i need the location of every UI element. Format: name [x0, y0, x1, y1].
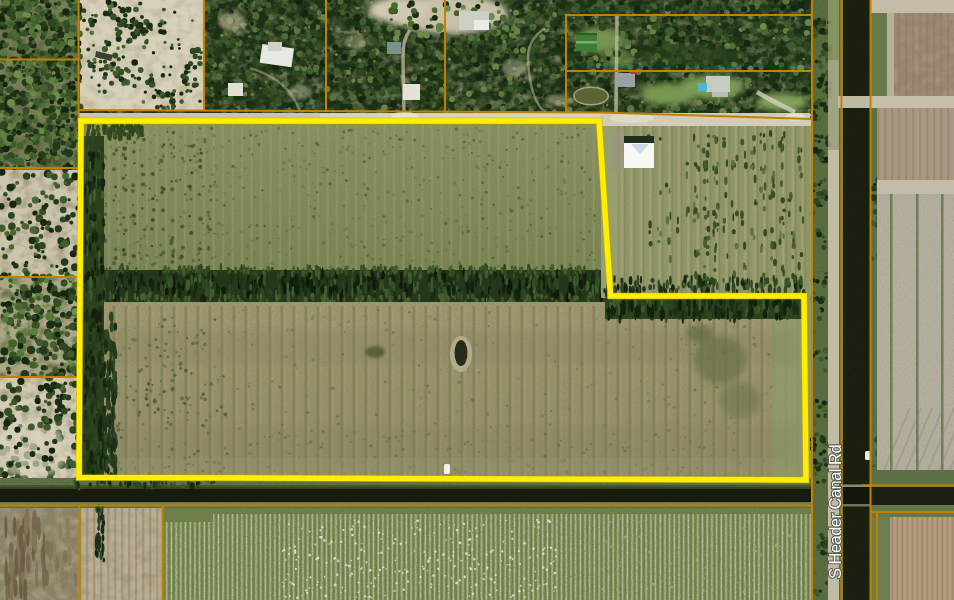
svg-text:S Header Canal Rd: S Header Canal Rd: [826, 444, 844, 579]
